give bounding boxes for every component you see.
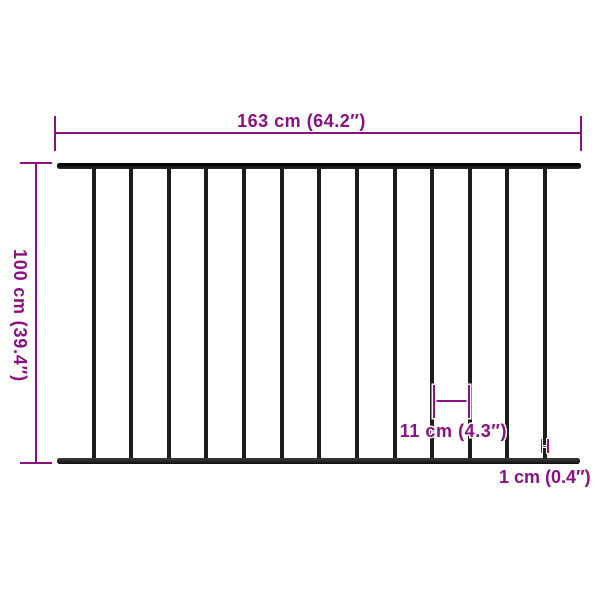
svg-text:11 cm (4.3″): 11 cm (4.3″) [400, 421, 507, 441]
